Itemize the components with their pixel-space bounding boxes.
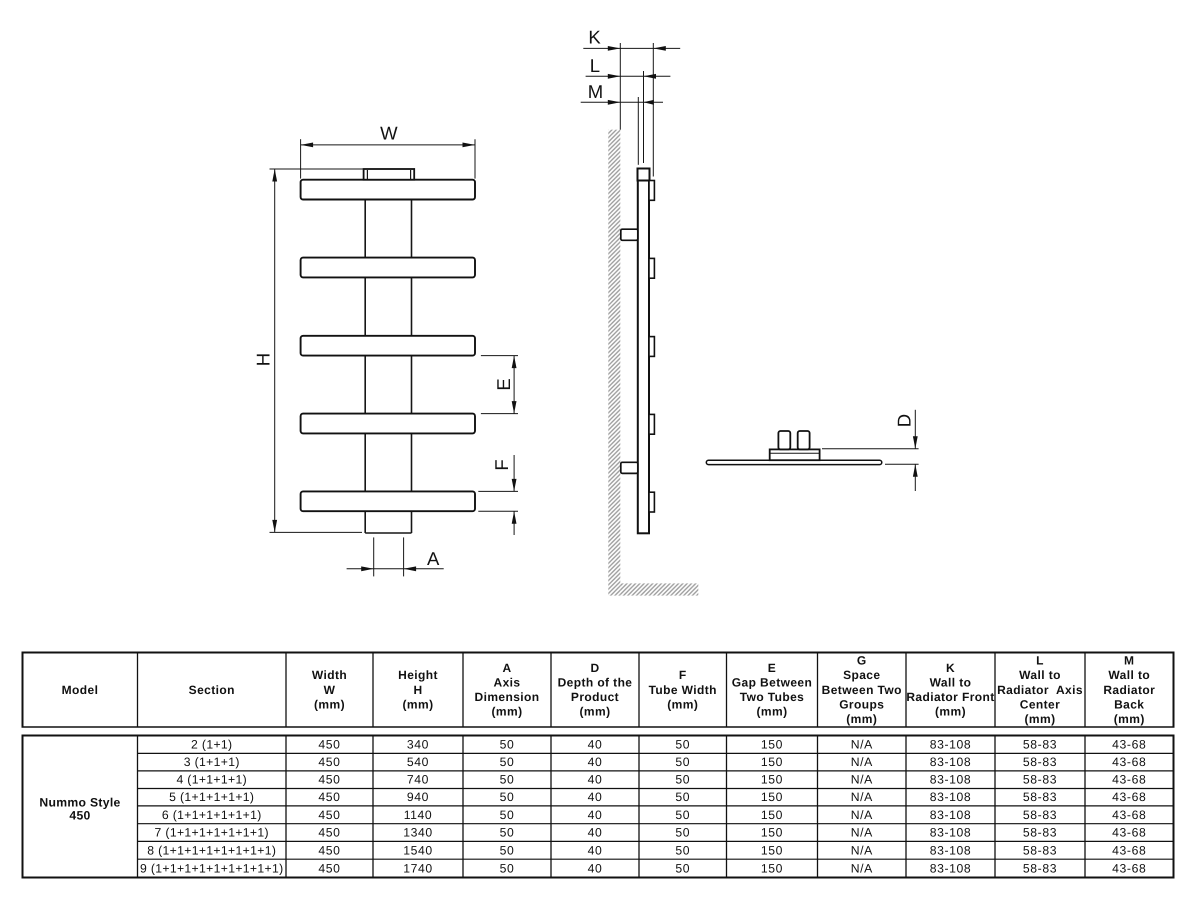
svg-text:N/A: N/A (851, 861, 873, 875)
svg-text:Wall to: Wall to (1019, 668, 1061, 682)
svg-text:D: D (894, 414, 915, 427)
svg-text:(mm): (mm) (1025, 712, 1056, 726)
svg-text:Two Tubes: Two Tubes (740, 690, 805, 704)
svg-text:(mm): (mm) (846, 712, 877, 726)
svg-text:43-68: 43-68 (1112, 826, 1146, 840)
svg-text:83-108: 83-108 (930, 843, 972, 857)
svg-text:3 (1+1+1): 3 (1+1+1) (184, 755, 240, 769)
svg-text:58-83: 58-83 (1023, 737, 1057, 751)
svg-text:1740: 1740 (403, 861, 433, 875)
svg-text:2 (1+1): 2 (1+1) (191, 737, 232, 751)
svg-text:E: E (493, 378, 514, 390)
svg-text:Wall to: Wall to (1108, 668, 1150, 682)
svg-text:150: 150 (761, 826, 783, 840)
svg-text:Center: Center (1020, 697, 1060, 711)
svg-text:50: 50 (500, 808, 515, 822)
svg-text:E: E (768, 661, 776, 675)
svg-text:Back: Back (1114, 697, 1144, 711)
svg-text:150: 150 (761, 808, 783, 822)
svg-text:50: 50 (675, 755, 690, 769)
svg-text:Gap Between: Gap Between (732, 675, 812, 689)
svg-text:(mm): (mm) (580, 705, 611, 719)
svg-text:40: 40 (588, 737, 603, 751)
svg-text:450: 450 (318, 826, 340, 840)
svg-text:40: 40 (588, 826, 603, 840)
svg-text:40: 40 (588, 773, 603, 787)
svg-text:(mm): (mm) (314, 697, 345, 711)
svg-text:150: 150 (761, 861, 783, 875)
svg-text:450: 450 (318, 861, 340, 875)
svg-text:H: H (253, 353, 274, 366)
svg-text:450: 450 (318, 843, 340, 857)
svg-text:58-83: 58-83 (1023, 808, 1057, 822)
svg-text:50: 50 (675, 808, 690, 822)
svg-text:1540: 1540 (403, 843, 433, 857)
svg-text:F: F (679, 668, 687, 682)
svg-text:N/A: N/A (851, 843, 873, 857)
svg-text:Width: Width (312, 668, 347, 682)
svg-text:50: 50 (675, 737, 690, 751)
svg-text:43-68: 43-68 (1112, 737, 1146, 751)
svg-text:150: 150 (761, 843, 783, 857)
svg-text:43-68: 43-68 (1112, 790, 1146, 804)
svg-text:83-108: 83-108 (930, 826, 972, 840)
svg-text:940: 940 (407, 790, 429, 804)
svg-text:83-108: 83-108 (930, 773, 972, 787)
svg-text:Model: Model (62, 683, 99, 697)
svg-text:50: 50 (500, 737, 515, 751)
svg-text:150: 150 (761, 790, 783, 804)
svg-text:G: G (857, 654, 867, 668)
svg-text:450: 450 (318, 808, 340, 822)
svg-text:40: 40 (588, 861, 603, 875)
svg-text:8 (1+1+1+1+1+1+1+1): 8 (1+1+1+1+1+1+1+1) (147, 843, 276, 857)
svg-text:Wall to: Wall to (930, 675, 972, 689)
svg-text:83-108: 83-108 (930, 737, 972, 751)
svg-text:M: M (588, 81, 603, 102)
svg-text:N/A: N/A (851, 755, 873, 769)
svg-text:Radiator Front: Radiator Front (906, 690, 994, 704)
svg-text:F: F (491, 459, 512, 470)
svg-text:Radiator: Radiator (1103, 683, 1155, 697)
svg-text:7 (1+1+1+1+1+1+1): 7 (1+1+1+1+1+1+1) (155, 826, 269, 840)
svg-text:40: 40 (588, 843, 603, 857)
svg-text:(mm): (mm) (757, 705, 788, 719)
svg-text:43-68: 43-68 (1112, 773, 1146, 787)
svg-text:(mm): (mm) (403, 697, 434, 711)
svg-text:50: 50 (500, 843, 515, 857)
svg-text:43-68: 43-68 (1112, 861, 1146, 875)
svg-text:Dimension: Dimension (475, 690, 540, 704)
svg-text:58-83: 58-83 (1023, 843, 1057, 857)
svg-text:50: 50 (675, 826, 690, 840)
svg-text:43-68: 43-68 (1112, 755, 1146, 769)
svg-text:(mm): (mm) (1114, 712, 1145, 726)
svg-text:58-83: 58-83 (1023, 861, 1057, 875)
svg-text:450: 450 (69, 809, 90, 823)
svg-text:N/A: N/A (851, 808, 873, 822)
svg-text:Axis: Axis (494, 675, 521, 689)
svg-text:A: A (502, 661, 511, 675)
svg-text:83-108: 83-108 (930, 808, 972, 822)
svg-text:Product: Product (571, 690, 619, 704)
svg-text:K: K (588, 27, 601, 48)
svg-text:150: 150 (761, 773, 783, 787)
svg-text:A: A (427, 548, 440, 569)
svg-text:40: 40 (588, 808, 603, 822)
svg-text:58-83: 58-83 (1023, 826, 1057, 840)
svg-text:Radiator Axis: Radiator Axis (997, 683, 1083, 697)
svg-text:(mm): (mm) (935, 705, 966, 719)
svg-text:W: W (380, 123, 398, 144)
svg-text:540: 540 (407, 755, 429, 769)
svg-text:150: 150 (761, 737, 783, 751)
svg-text:450: 450 (318, 755, 340, 769)
svg-text:83-108: 83-108 (930, 861, 972, 875)
svg-text:450: 450 (318, 790, 340, 804)
svg-text:9 (1+1+1+1+1+1+1+1+1): 9 (1+1+1+1+1+1+1+1+1) (140, 861, 284, 875)
svg-text:40: 40 (588, 790, 603, 804)
svg-text:50: 50 (675, 843, 690, 857)
svg-text:43-68: 43-68 (1112, 843, 1146, 857)
svg-text:L: L (590, 55, 600, 76)
svg-text:43-68: 43-68 (1112, 808, 1146, 822)
svg-text:L: L (1036, 654, 1044, 668)
svg-text:D: D (590, 661, 599, 675)
svg-text:Depth of the: Depth of the (558, 675, 633, 689)
svg-text:Groups: Groups (839, 697, 884, 711)
svg-text:83-108: 83-108 (930, 790, 972, 804)
svg-text:50: 50 (500, 755, 515, 769)
svg-text:N/A: N/A (851, 737, 873, 751)
svg-text:58-83: 58-83 (1023, 773, 1057, 787)
svg-text:N/A: N/A (851, 790, 873, 804)
svg-text:58-83: 58-83 (1023, 755, 1057, 769)
svg-text:K: K (946, 661, 955, 675)
svg-text:50: 50 (500, 773, 515, 787)
svg-text:5 (1+1+1+1+1): 5 (1+1+1+1+1) (169, 790, 254, 804)
svg-text:N/A: N/A (851, 826, 873, 840)
svg-text:Section: Section (189, 683, 235, 697)
svg-text:Height: Height (398, 668, 438, 682)
svg-text:H: H (413, 683, 422, 697)
svg-text:340: 340 (407, 737, 429, 751)
svg-text:50: 50 (675, 861, 690, 875)
svg-text:50: 50 (500, 861, 515, 875)
svg-text:740: 740 (407, 773, 429, 787)
svg-text:Tube Width: Tube Width (649, 683, 717, 697)
svg-text:1340: 1340 (403, 826, 433, 840)
svg-text:1140: 1140 (404, 808, 433, 822)
svg-text:6 (1+1+1+1+1+1): 6 (1+1+1+1+1+1) (162, 808, 262, 822)
svg-text:83-108: 83-108 (930, 755, 972, 769)
svg-text:50: 50 (500, 790, 515, 804)
svg-text:450: 450 (318, 773, 340, 787)
svg-text:50: 50 (675, 790, 690, 804)
svg-text:50: 50 (675, 773, 690, 787)
svg-text:M: M (1124, 654, 1134, 668)
svg-text:(mm): (mm) (492, 705, 523, 719)
svg-text:150: 150 (761, 755, 783, 769)
svg-text:Nummo Style: Nummo Style (39, 796, 120, 810)
svg-text:(mm): (mm) (667, 697, 698, 711)
svg-text:40: 40 (588, 755, 603, 769)
svg-text:450: 450 (318, 737, 340, 751)
svg-text:N/A: N/A (851, 773, 873, 787)
svg-text:W: W (324, 683, 336, 697)
svg-text:Space: Space (843, 668, 880, 682)
svg-text:58-83: 58-83 (1023, 790, 1057, 804)
svg-text:50: 50 (500, 826, 515, 840)
svg-text:4 (1+1+1+1): 4 (1+1+1+1) (176, 773, 247, 787)
svg-text:Between Two: Between Two (822, 683, 902, 697)
